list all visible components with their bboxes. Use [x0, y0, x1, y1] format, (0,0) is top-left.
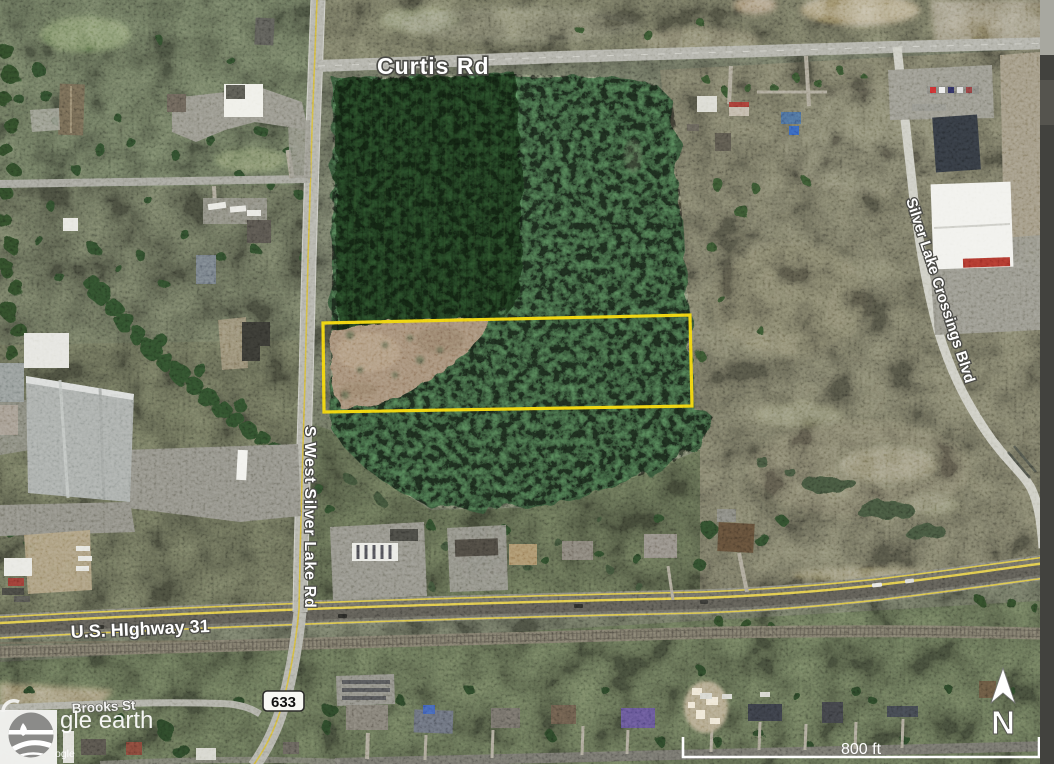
- svg-text:800 ft: 800 ft: [841, 741, 882, 758]
- svg-text:S West Silver Lake Rd: S West Silver Lake Rd: [301, 426, 318, 608]
- svg-text:633: 633: [271, 694, 296, 711]
- svg-text:gle earth: gle earth: [60, 707, 153, 734]
- svg-text:Curtis Rd: Curtis Rd: [377, 53, 490, 79]
- svg-text:ogle: ogle: [55, 748, 75, 760]
- svg-text:N: N: [991, 704, 1015, 741]
